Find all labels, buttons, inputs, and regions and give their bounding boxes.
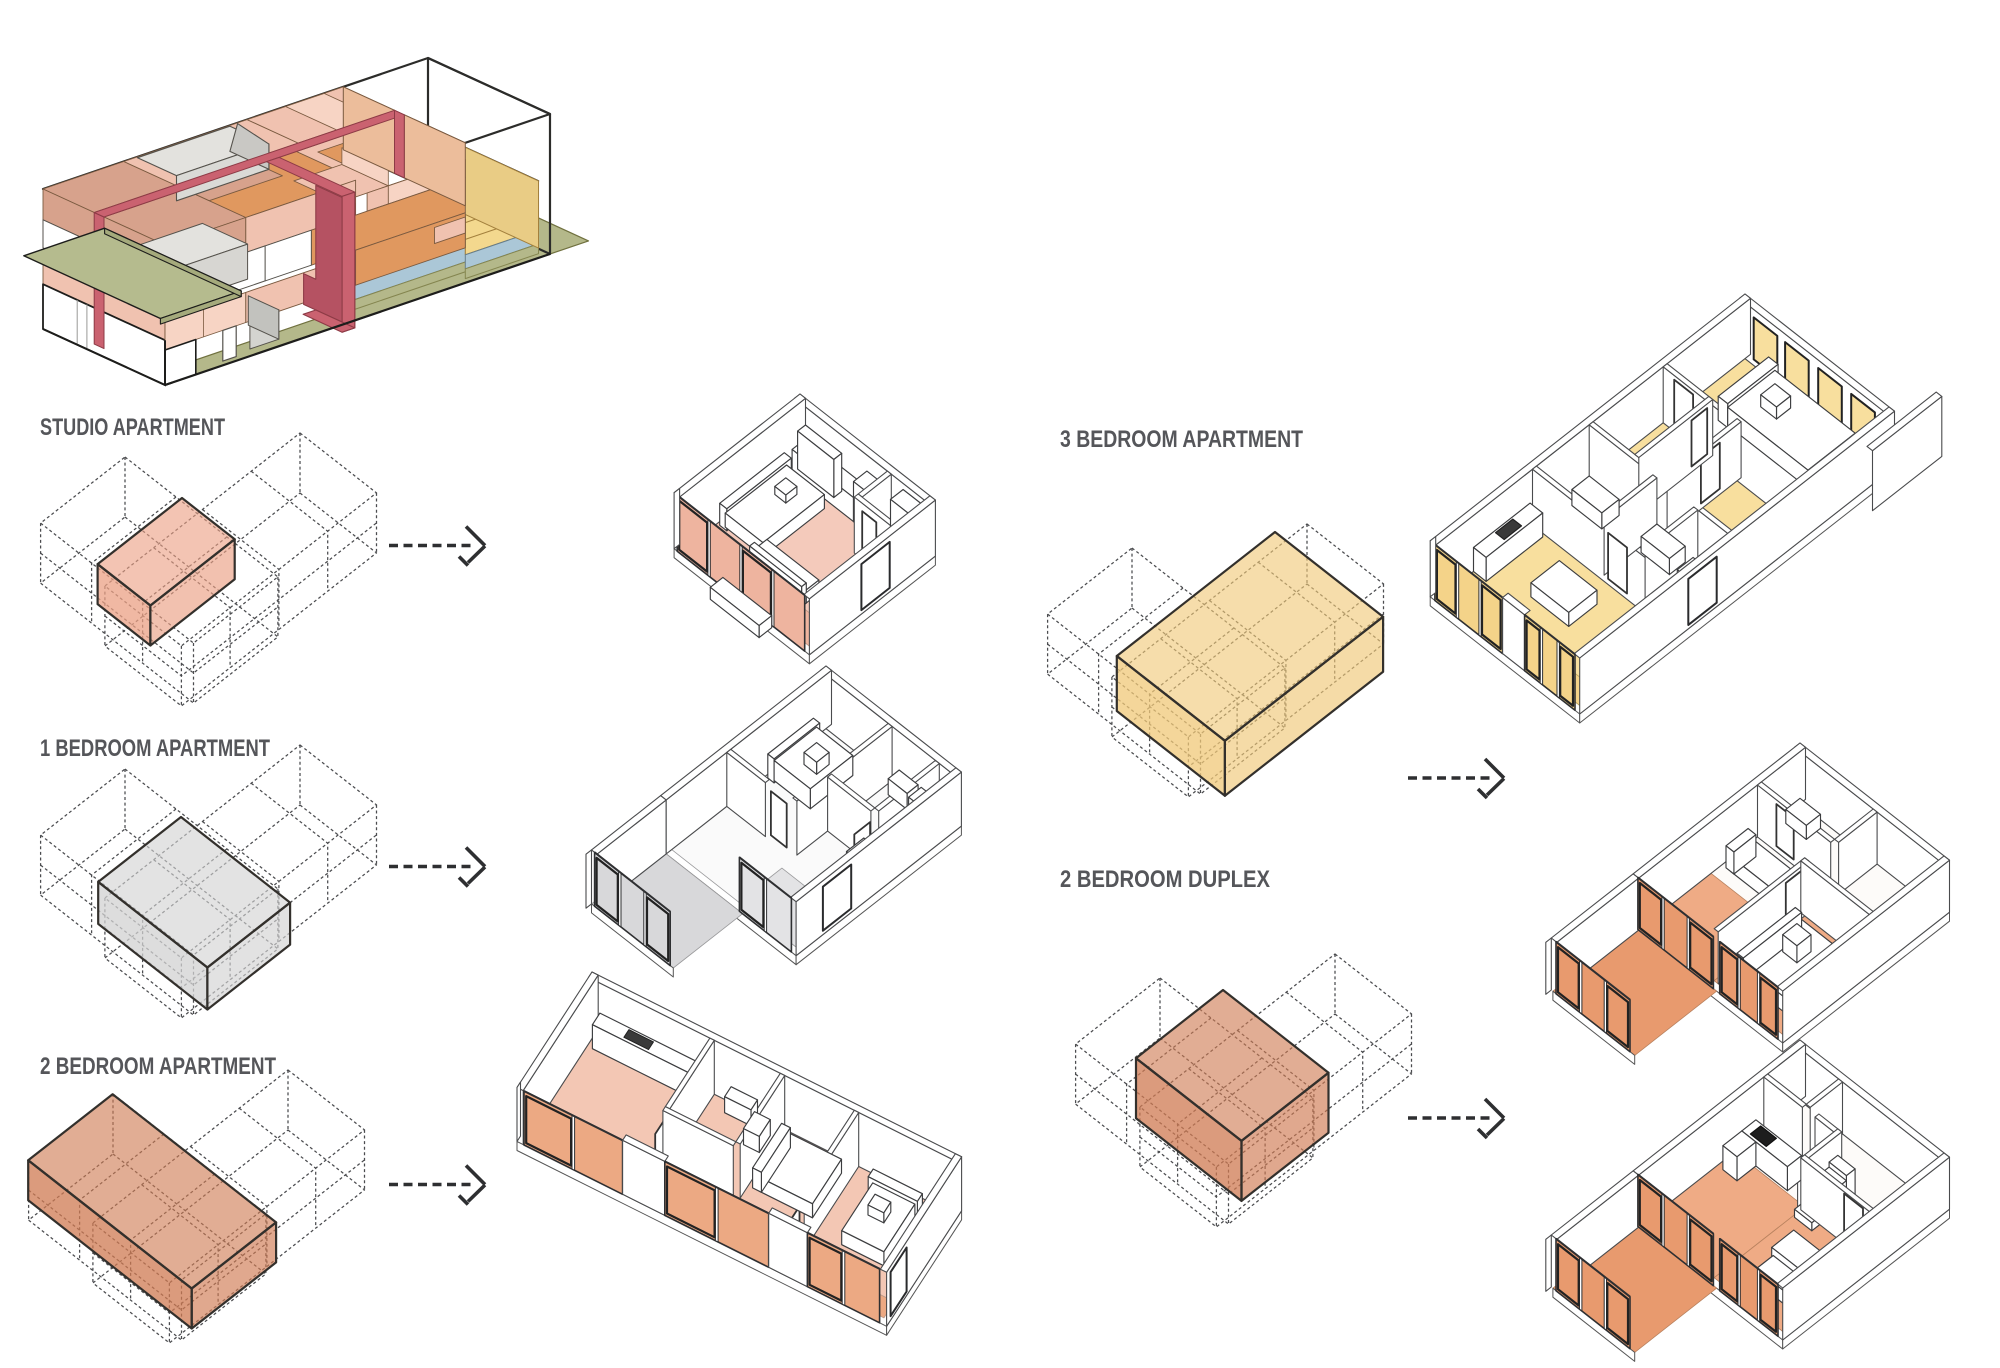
svg-text:STUDIO APARTMENT: STUDIO APARTMENT [40, 414, 225, 441]
svg-text:3 BEDROOM APARTMENT: 3 BEDROOM APARTMENT [1060, 426, 1303, 453]
svg-text:1 BEDROOM APARTMENT: 1 BEDROOM APARTMENT [40, 735, 270, 762]
svg-text:2 BEDROOM APARTMENT: 2 BEDROOM APARTMENT [40, 1053, 276, 1080]
svg-text:2 BEDROOM DUPLEX: 2 BEDROOM DUPLEX [1060, 866, 1270, 893]
